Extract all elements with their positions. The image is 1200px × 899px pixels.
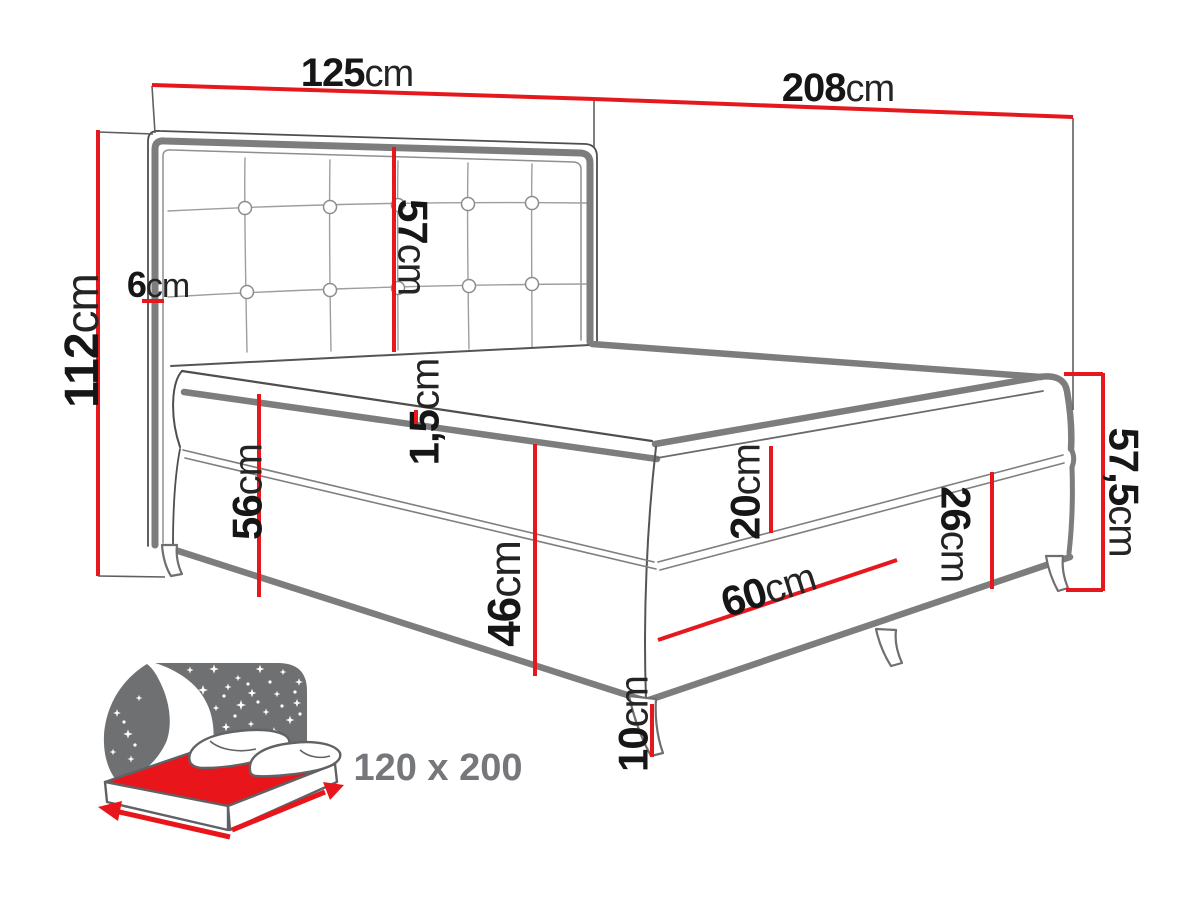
size-label: 120 x 200 xyxy=(353,747,522,789)
dim-label-foot-height: 57,5cm xyxy=(1100,427,1147,556)
dimension-lines xyxy=(98,85,1103,757)
dim-label-headboard-width: 125cm xyxy=(301,51,413,95)
length-arrowhead xyxy=(323,782,344,800)
width-arrowhead xyxy=(98,801,122,821)
tufting-seams xyxy=(168,158,586,352)
dim-label-topper: 1,5cm xyxy=(401,359,448,466)
diagram-canvas: 120 x 200 125cm 208cm 112cm xyxy=(0,0,1200,899)
bed-size-icon: 120 x 200 xyxy=(98,663,523,837)
bed-leg xyxy=(876,629,902,666)
dim-label-leg-height: 10cm xyxy=(610,676,657,772)
headboard xyxy=(148,131,597,546)
dim-label-base-height: 26cm xyxy=(932,486,979,582)
dim-label-mattress-height: 20cm xyxy=(722,444,769,540)
dim-label-headboard-panel: 57cm xyxy=(389,199,436,295)
tufting-buttons xyxy=(239,197,539,299)
dim-label-headboard-depth: 6cm xyxy=(127,264,189,305)
bed-dimension-diagram: 120 x 200 125cm 208cm 112cm xyxy=(0,0,1200,899)
dim-label-headboard-height: 112cm xyxy=(56,274,109,408)
dim-label-mattress-base: 46cm xyxy=(478,541,530,647)
dim-label-side-height: 56cm xyxy=(224,444,271,540)
dim-label-foot-segment: 60cm xyxy=(715,552,821,626)
bed-drawing xyxy=(148,131,1074,756)
dim-label-bed-length: 208cm xyxy=(782,66,894,110)
